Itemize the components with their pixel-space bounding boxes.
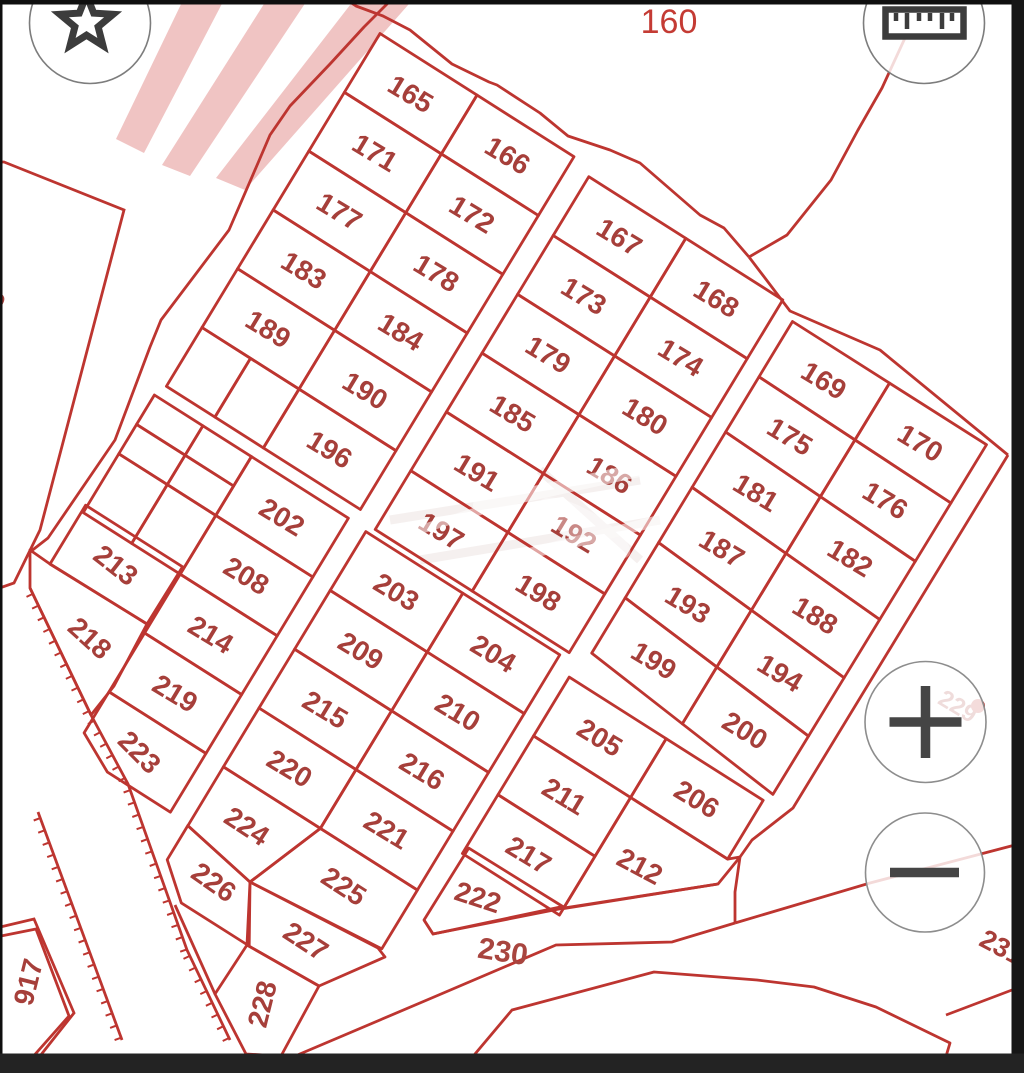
svg-text:160: 160 <box>641 3 698 41</box>
